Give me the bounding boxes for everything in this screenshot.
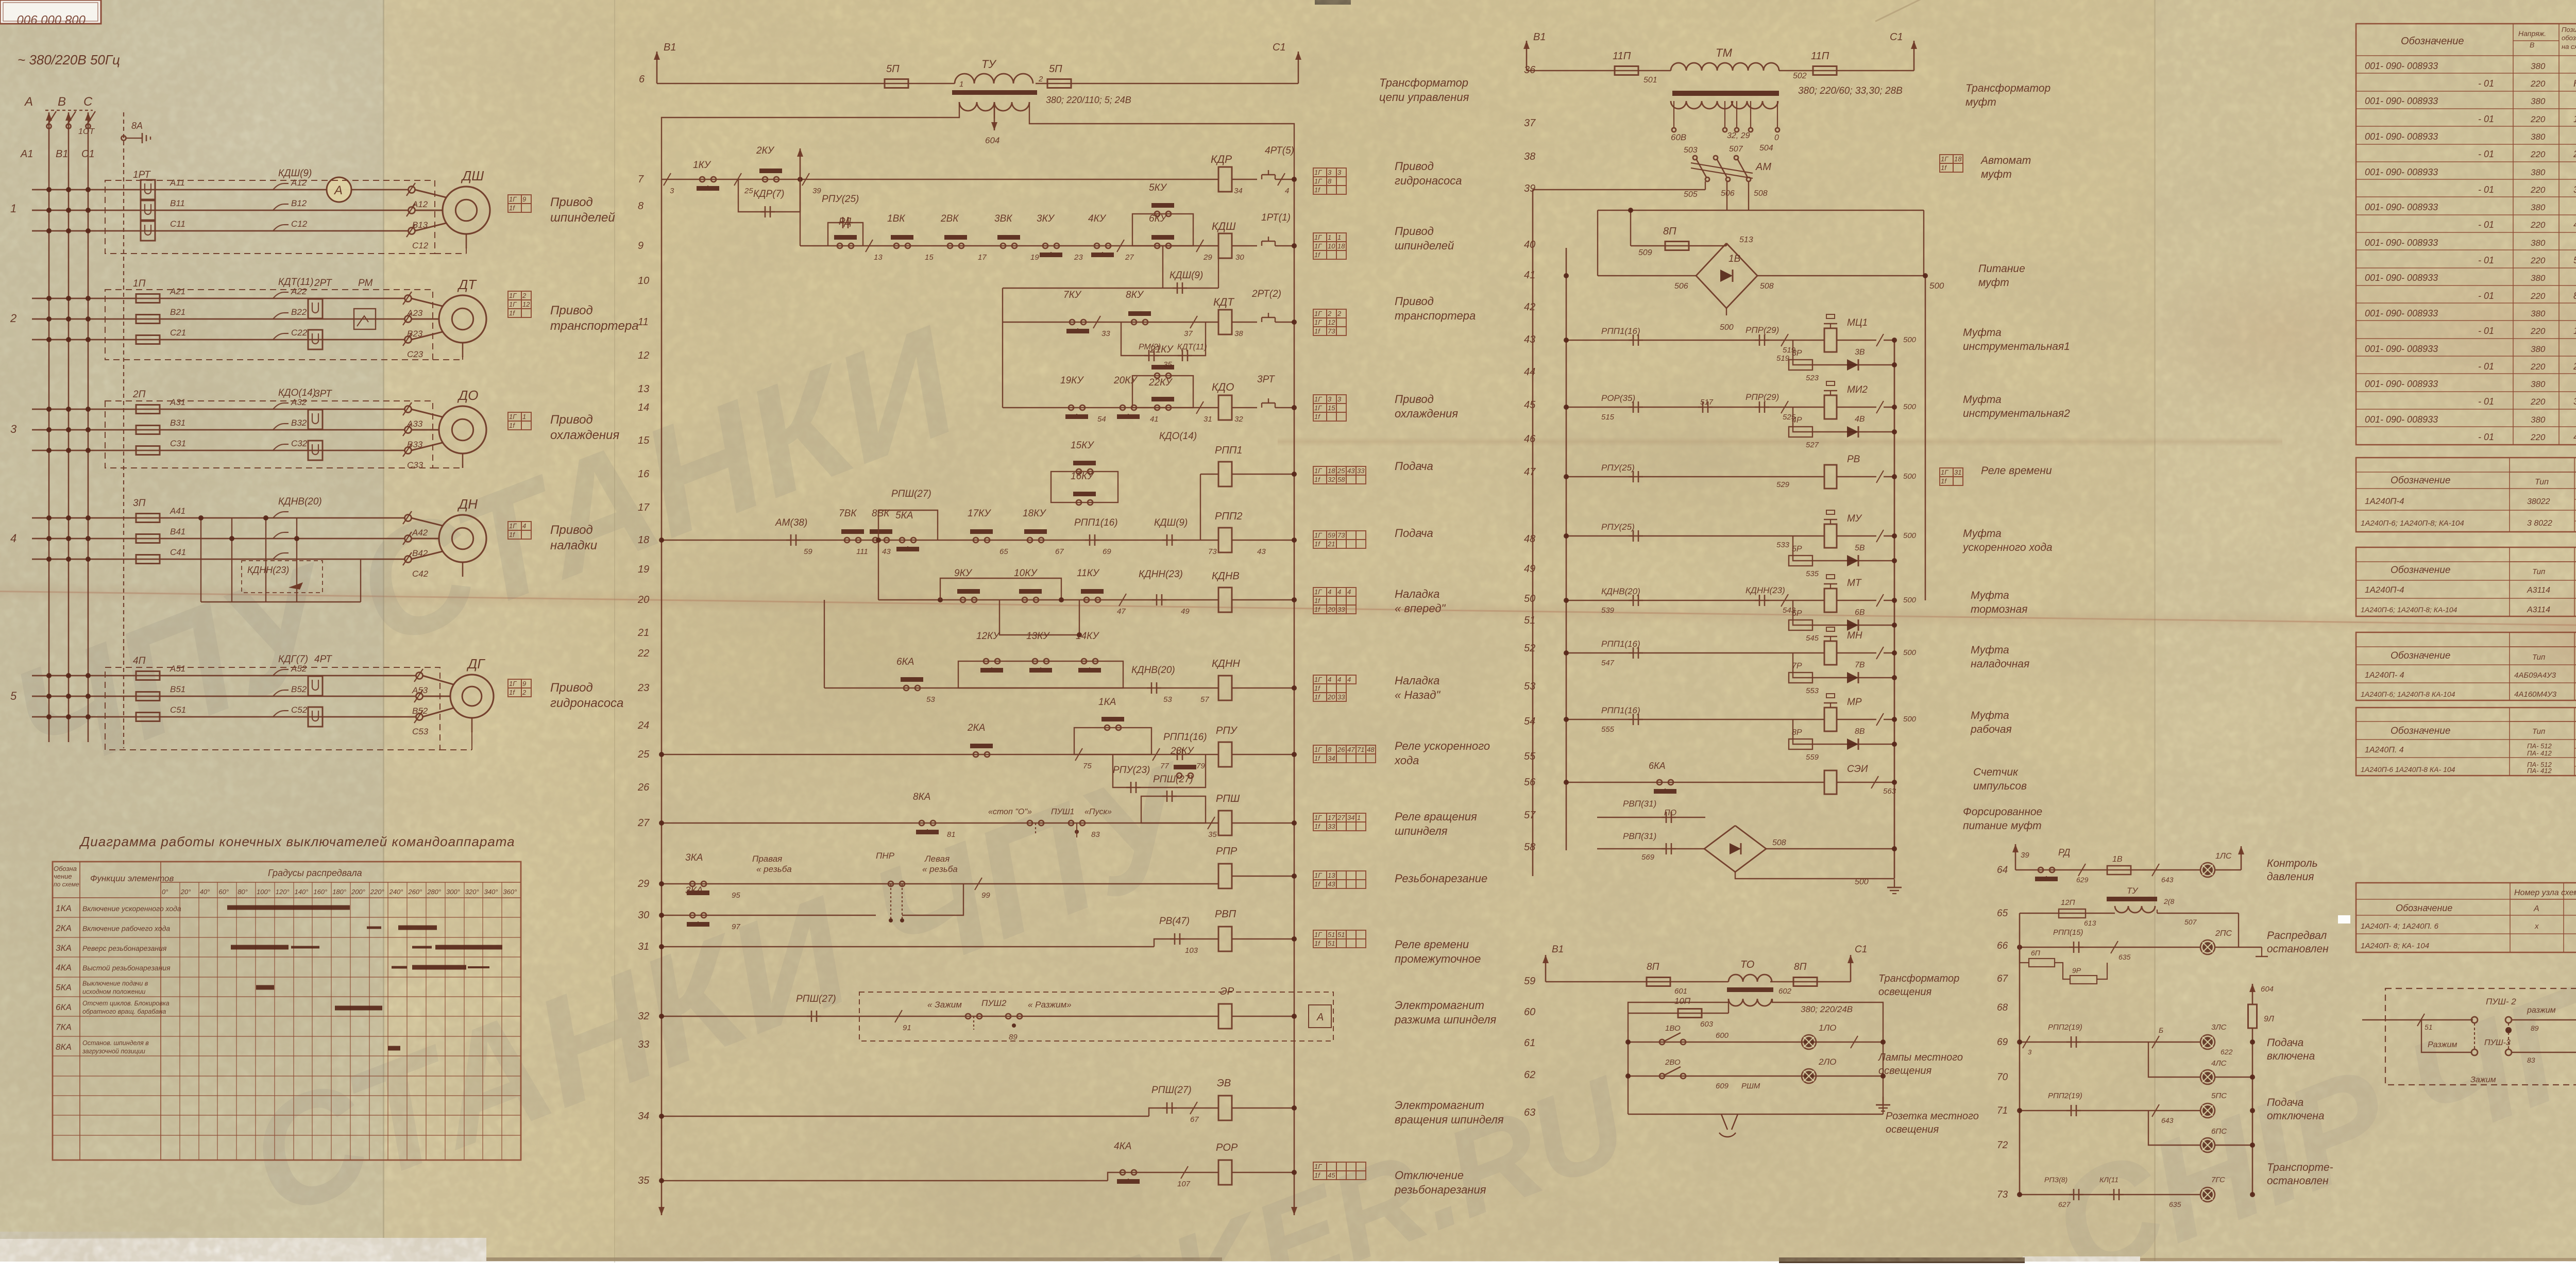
svg-text:8П: 8П: [1794, 962, 1807, 972]
svg-text:89: 89: [1009, 1033, 1018, 1042]
svg-text:Привод: Привод: [550, 681, 593, 695]
svg-text:Электромагнит: Электромагнит: [1395, 1099, 1484, 1112]
svg-text:8П: 8П: [1647, 962, 1659, 972]
svg-text:5П: 5П: [1049, 63, 1062, 75]
svg-text:17: 17: [978, 253, 987, 262]
svg-text:4: 4: [1347, 588, 1351, 596]
svg-text:1Г: 1Г: [1314, 588, 1322, 596]
svg-text:В22: В22: [291, 307, 307, 317]
svg-text:наладочная: наладочная: [1971, 658, 2029, 670]
svg-text:разжима шпинделя: разжима шпинделя: [1394, 1013, 1497, 1026]
svg-text:43: 43: [1257, 547, 1266, 556]
svg-text:67: 67: [1997, 973, 2009, 984]
svg-text:Реле времени: Реле времени: [1981, 465, 2052, 477]
svg-text:КДНН(23): КДНН(23): [1745, 585, 1785, 595]
svg-text:Обозначение: Обозначение: [2401, 36, 2464, 47]
svg-text:12: 12: [1328, 318, 1335, 326]
svg-text:1f: 1f: [1314, 880, 1320, 888]
svg-text:РПШ(27): РПШ(27): [891, 489, 931, 499]
svg-text:43: 43: [1347, 467, 1355, 475]
svg-text:Транспорте-: Транспорте-: [2267, 1162, 2333, 1173]
svg-text:ТМ: ТМ: [1716, 46, 1733, 59]
svg-text:С12: С12: [412, 241, 429, 250]
svg-text:71: 71: [1357, 746, 1364, 753]
svg-text:240°: 240°: [389, 888, 403, 896]
svg-text:3: 3: [1328, 169, 1332, 176]
svg-text:Останов. шпинделя в: Останов. шпинделя в: [82, 1039, 149, 1047]
svg-text:001- 090- 008933: 001- 090- 008933: [2365, 61, 2438, 71]
svg-text:507: 507: [2184, 918, 2197, 926]
svg-text:6П: 6П: [2031, 949, 2041, 957]
svg-text:А: А: [333, 183, 343, 197]
svg-text:4: 4: [1337, 588, 1341, 596]
svg-text:ТУ: ТУ: [981, 58, 996, 71]
svg-text:Муфта: Муфта: [1963, 394, 2002, 406]
svg-text:А1: А1: [20, 148, 33, 160]
svg-text:- 01: - 01: [2478, 149, 2494, 159]
svg-text:73: 73: [1328, 327, 1335, 335]
svg-text:4КА: 4КА: [56, 963, 72, 972]
svg-text:559: 559: [1806, 753, 1819, 762]
svg-text:2П: 2П: [132, 389, 146, 400]
svg-text:4: 4: [1347, 676, 1351, 683]
svg-text:545: 545: [1806, 634, 1819, 643]
svg-text:4: 4: [1337, 676, 1341, 683]
svg-text:7: 7: [638, 174, 644, 185]
svg-text:ДН: ДН: [457, 496, 478, 512]
svg-text:30: 30: [638, 910, 649, 921]
svg-text:ДО: ДО: [457, 388, 479, 403]
svg-text:57: 57: [1524, 810, 1536, 821]
svg-text:604: 604: [985, 136, 999, 145]
svg-text:539: 539: [1601, 606, 1615, 615]
svg-text:Отключение: Отключение: [1395, 1169, 1464, 1182]
svg-text:по схеме: по схеме: [54, 881, 79, 888]
svg-text:РПП1: РПП1: [1215, 445, 1242, 456]
svg-text:502: 502: [1793, 72, 1807, 80]
svg-text:гидронасоса: гидронасоса: [1395, 174, 1462, 187]
svg-text:8П: 8П: [1663, 226, 1676, 237]
svg-text:Градусы распредвала: Градусы распредвала: [268, 868, 362, 878]
svg-text:2ПС: 2ПС: [2215, 929, 2232, 938]
svg-text:46: 46: [1524, 433, 1536, 445]
svg-text:601: 601: [1674, 987, 1687, 996]
svg-text:53: 53: [926, 695, 935, 704]
svg-text:обратного вращ. барабана: обратного вращ. барабана: [82, 1008, 166, 1015]
svg-text:300°: 300°: [446, 888, 460, 896]
svg-text:2РТ: 2РТ: [314, 278, 332, 289]
svg-text:гидронасоса: гидронасоса: [550, 696, 623, 710]
svg-text:7КА: 7КА: [56, 1022, 72, 1032]
svg-text:43: 43: [1328, 880, 1335, 888]
svg-text:627: 627: [2058, 1200, 2071, 1208]
svg-text:99: 99: [981, 891, 990, 900]
svg-text:В1: В1: [56, 148, 68, 160]
svg-text:83: 83: [2527, 1056, 2535, 1064]
svg-text:остановлен: остановлен: [2267, 943, 2329, 955]
svg-text:001- 090- 008933: 001- 090- 008933: [2365, 344, 2438, 354]
svg-text:1Г: 1Г: [1941, 468, 1948, 476]
svg-text:Электромагнит: Электромагнит: [1395, 999, 1484, 1012]
svg-text:1ОТ: 1ОТ: [78, 127, 95, 136]
svg-text:35: 35: [1208, 830, 1217, 839]
svg-text:10КУ: 10КУ: [1014, 568, 1038, 579]
svg-text:КДТ: КДТ: [1213, 296, 1235, 308]
svg-text:12: 12: [638, 350, 649, 361]
svg-text:503: 503: [1684, 146, 1698, 155]
svg-text:635: 635: [2169, 1200, 2181, 1208]
svg-text:89: 89: [2531, 1024, 2539, 1032]
svg-text:1ЛО: 1ЛО: [1819, 1023, 1836, 1033]
svg-text:шпинделей: шпинделей: [550, 211, 615, 225]
svg-text:С1: С1: [1855, 944, 1867, 955]
svg-text:4КА: 4КА: [1114, 1141, 1131, 1152]
svg-text:ПУШ-3: ПУШ-3: [2484, 1038, 2511, 1047]
svg-text:67: 67: [1190, 1115, 1199, 1124]
svg-text:380: 380: [2531, 238, 2546, 248]
svg-text:Контроль: Контроль: [2267, 858, 2318, 869]
svg-text:1f: 1f: [1314, 413, 1320, 421]
svg-text:3Р: 3Р: [1792, 349, 1802, 358]
svg-text:103: 103: [1185, 946, 1198, 955]
svg-text:60°: 60°: [218, 888, 229, 896]
svg-text:200°: 200°: [351, 888, 365, 896]
svg-text:1f: 1f: [1314, 251, 1320, 259]
svg-text:1П: 1П: [2573, 114, 2576, 124]
svg-text:47: 47: [1117, 607, 1126, 616]
svg-text:Тип: Тип: [2532, 727, 2545, 736]
svg-text:8КУ: 8КУ: [1126, 290, 1144, 300]
svg-text:35: 35: [638, 1175, 650, 1186]
svg-text:- 01: - 01: [2478, 255, 2494, 265]
svg-text:38022: 38022: [2527, 497, 2550, 506]
svg-text:КДР: КДР: [1211, 154, 1232, 165]
svg-text:24: 24: [637, 720, 649, 731]
svg-text:380: 380: [2531, 344, 2546, 354]
svg-text:63: 63: [1524, 1107, 1535, 1118]
svg-text:1f: 1f: [1314, 939, 1320, 947]
svg-text:8КА: 8КА: [913, 792, 930, 802]
svg-text:1А240П-6; 1А240П-8 КА-104: 1А240П-6; 1А240П-8 КА-104: [2361, 690, 2455, 698]
svg-text:340°: 340°: [484, 888, 498, 896]
svg-text:цепи управления: цепи управления: [1379, 91, 1469, 104]
svg-text:КДО(14): КДО(14): [1159, 431, 1197, 442]
svg-text:4П: 4П: [2573, 220, 2576, 230]
svg-text:001- 090- 008933: 001- 090- 008933: [2365, 308, 2438, 318]
svg-text:34: 34: [1328, 754, 1335, 762]
svg-text:71: 71: [1997, 1105, 2008, 1116]
svg-text:64: 64: [1997, 865, 2008, 876]
svg-text:Привод: Привод: [1395, 225, 1434, 238]
svg-text:66: 66: [1997, 941, 2008, 951]
svg-text:380; 220/24В: 380; 220/24В: [1801, 1004, 1853, 1014]
svg-text:553: 553: [1806, 686, 1819, 695]
svg-text:563: 563: [1883, 787, 1896, 796]
svg-text:1Г: 1Г: [1314, 871, 1322, 879]
svg-text:РПП1(16): РПП1(16): [1601, 639, 1640, 649]
svg-text:220: 220: [2530, 397, 2546, 407]
svg-text:500: 500: [1903, 335, 1917, 344]
svg-text:1f: 1f: [1314, 822, 1320, 830]
svg-text:529: 529: [1776, 480, 1790, 489]
svg-text:3КА: 3КА: [685, 852, 703, 863]
svg-text:21: 21: [1327, 540, 1335, 548]
svg-text:1В: 1В: [2112, 855, 2123, 864]
svg-text:Реверс резьбонарезания: Реверс резьбонарезания: [82, 944, 167, 952]
svg-text:АМ: АМ: [1755, 161, 1771, 173]
svg-text:23КУ: 23КУ: [1170, 746, 1194, 757]
svg-text:547: 547: [1601, 659, 1615, 667]
svg-text:1f: 1f: [1314, 327, 1320, 335]
svg-text:180°: 180°: [332, 888, 346, 896]
svg-text:Подача: Подача: [1395, 527, 1433, 540]
svg-text:39: 39: [2021, 851, 2029, 860]
svg-text:- 01: - 01: [2478, 220, 2494, 230]
svg-text:3В: 3В: [1855, 348, 1865, 357]
svg-text:РВП: РВП: [1215, 909, 1236, 920]
svg-text:220: 220: [2530, 185, 2546, 195]
svg-text:РД: РД: [2058, 847, 2071, 858]
svg-text:001- 090- 008933: 001- 090- 008933: [2365, 96, 2438, 106]
svg-text:ТО: ТО: [1740, 959, 1754, 970]
svg-text:59: 59: [1328, 531, 1335, 539]
svg-text:12П: 12П: [2061, 898, 2075, 907]
svg-text:В: В: [58, 95, 66, 109]
svg-text:0°: 0°: [162, 888, 168, 896]
svg-text:МЦ1: МЦ1: [1847, 317, 1868, 328]
svg-text:220°: 220°: [370, 888, 384, 896]
svg-text:51: 51: [2425, 1023, 2433, 1031]
svg-text:РПЗ(8): РПЗ(8): [2044, 1176, 2067, 1184]
svg-text:40°: 40°: [200, 888, 210, 896]
svg-text:8В: 8В: [1855, 727, 1865, 736]
svg-text:380; 220/110; 5; 24В: 380; 220/110; 5; 24В: [1046, 95, 1131, 105]
svg-text:1Г: 1Г: [509, 195, 517, 203]
svg-text:1Г: 1Г: [1314, 467, 1322, 475]
svg-text:001- 090- 008933: 001- 090- 008933: [2365, 414, 2438, 425]
svg-text:602: 602: [1778, 987, 1792, 996]
svg-text:А21: А21: [170, 287, 185, 296]
svg-text:500: 500: [1903, 648, 1917, 657]
svg-text:48: 48: [1367, 746, 1375, 753]
svg-text:50: 50: [1524, 593, 1535, 605]
svg-text:Правая: Правая: [752, 854, 782, 864]
svg-text:С41: С41: [170, 547, 186, 557]
svg-text:С22: С22: [291, 328, 308, 338]
svg-text:39: 39: [812, 187, 821, 195]
svg-text:58: 58: [1524, 842, 1535, 853]
svg-text:КДО(14): КДО(14): [278, 388, 316, 398]
svg-text:КДШ: КДШ: [1212, 221, 1236, 232]
svg-text:инструментальная2: инструментальная2: [1963, 408, 2070, 419]
svg-text:18: 18: [638, 534, 649, 546]
svg-text:1Г: 1Г: [1314, 318, 1322, 326]
svg-text:500: 500: [1903, 596, 1917, 605]
svg-text:18: 18: [1954, 155, 1962, 163]
svg-text:10: 10: [1328, 242, 1335, 250]
svg-text:С42: С42: [412, 569, 429, 579]
svg-text:45: 45: [1328, 1171, 1335, 1179]
svg-text:обознач.: обознач.: [2562, 34, 2576, 42]
svg-text:3: 3: [10, 423, 17, 435]
svg-text:2: 2: [522, 689, 527, 696]
svg-text:49: 49: [1524, 563, 1535, 575]
svg-text:47: 47: [1524, 466, 1536, 478]
svg-text:Включение ускоренного хода: Включение ускоренного хода: [82, 904, 181, 913]
svg-text:- 01: - 01: [2478, 396, 2494, 407]
svg-text:4: 4: [1328, 588, 1331, 596]
svg-text:37: 37: [1524, 117, 1536, 129]
svg-text:А22: А22: [291, 287, 307, 296]
svg-text:6: 6: [639, 74, 645, 85]
svg-text:57: 57: [1200, 695, 1209, 704]
svg-text:519: 519: [1776, 354, 1790, 363]
svg-text:97: 97: [732, 922, 740, 931]
svg-text:- 01: - 01: [2478, 361, 2494, 372]
svg-text:РПУ(25): РПУ(25): [822, 194, 859, 205]
svg-text:33: 33: [1328, 822, 1335, 830]
svg-text:220: 220: [2530, 149, 2546, 159]
svg-text:75: 75: [1083, 762, 1092, 770]
svg-text:18КУ: 18КУ: [1023, 508, 1046, 519]
svg-text:РПШ: РПШ: [1216, 793, 1240, 804]
svg-text:111: 111: [856, 547, 868, 556]
svg-text:В11: В11: [170, 198, 185, 208]
svg-text:72: 72: [1997, 1140, 2008, 1151]
svg-text:В12: В12: [291, 198, 307, 208]
svg-text:Муфта: Муфта: [1971, 590, 2009, 601]
svg-text:6КА: 6КА: [1649, 761, 1666, 771]
svg-text:КДШ(9): КДШ(9): [1154, 517, 1188, 528]
svg-text:13: 13: [638, 383, 649, 395]
svg-text:555: 555: [1601, 725, 1615, 734]
svg-text:8: 8: [1328, 177, 1332, 185]
svg-text:РВП(31): РВП(31): [1623, 799, 1656, 809]
svg-text:ДГ: ДГ: [466, 656, 485, 671]
svg-text:59: 59: [1524, 976, 1535, 987]
svg-text:1Г: 1Г: [1314, 676, 1322, 683]
svg-text:33: 33: [638, 1039, 649, 1050]
svg-text:5КА: 5КА: [895, 510, 913, 521]
svg-text:Левая: Левая: [924, 854, 950, 864]
svg-text:Номер узла схемы: Номер узла схемы: [2514, 888, 2576, 897]
svg-text:42: 42: [1524, 301, 1535, 313]
svg-text:603: 603: [1700, 1020, 1714, 1029]
svg-text:РПР(29): РПР(29): [1745, 325, 1779, 335]
svg-text:20: 20: [637, 594, 649, 606]
svg-text:73: 73: [1997, 1189, 2008, 1200]
svg-text:54: 54: [1524, 716, 1535, 727]
svg-text:51: 51: [1337, 931, 1345, 938]
svg-text:Обозначение: Обозначение: [2391, 650, 2450, 661]
svg-text:ПА- 512: ПА- 512: [2527, 742, 2552, 750]
svg-text:3КА: 3КА: [56, 943, 72, 953]
svg-text:питание муфт: питание муфт: [1963, 820, 2042, 832]
svg-text:шпинделя: шпинделя: [1395, 825, 1448, 837]
svg-text:13: 13: [874, 253, 883, 262]
svg-text:С11: С11: [170, 219, 185, 229]
svg-text:220: 220: [2530, 432, 2546, 442]
svg-text:20КУ: 20КУ: [1113, 375, 1138, 386]
svg-text:3ЛС: 3ЛС: [2211, 1023, 2227, 1032]
svg-text:001- 090- 008933: 001- 090- 008933: [2365, 167, 2438, 177]
svg-text:533: 533: [1776, 541, 1790, 549]
svg-text:31: 31: [638, 941, 649, 952]
svg-text:Реле ускоренного: Реле ускоренного: [1395, 740, 1490, 752]
svg-text:001- 090- 008933: 001- 090- 008933: [2365, 238, 2438, 248]
svg-text:51: 51: [1328, 939, 1335, 947]
svg-text:ПУШ2: ПУШ2: [981, 998, 1007, 1008]
svg-text:1А240П-6; 1А240П-8; КА-104: 1А240П-6; 1А240П-8; КА-104: [2361, 519, 2464, 528]
svg-text:506: 506: [1721, 189, 1735, 198]
svg-text:Позиц.: Позиц.: [2562, 26, 2576, 33]
svg-text:исходном положении: исходном положении: [82, 988, 145, 996]
svg-text:2: 2: [1327, 310, 1332, 317]
svg-text:3РТ: 3РТ: [314, 389, 332, 399]
svg-text:1f: 1f: [509, 422, 515, 429]
svg-text:3: 3: [1328, 395, 1332, 403]
svg-text:- 01: - 01: [2478, 114, 2494, 124]
svg-text:« Разжим»: « Разжим»: [1028, 1000, 1072, 1010]
svg-text:505: 505: [1684, 190, 1698, 199]
svg-text:Привод: Привод: [1395, 393, 1434, 406]
svg-text:Привод: Привод: [550, 195, 593, 209]
svg-text:СЭИ: СЭИ: [1847, 764, 1868, 775]
svg-text:Обозна: Обозна: [54, 865, 77, 872]
svg-text:- 01: - 01: [2478, 291, 2494, 301]
svg-text:3КА: 3КА: [685, 885, 703, 896]
svg-text:РПШ(27): РПШ(27): [1153, 774, 1193, 785]
svg-text:4: 4: [10, 532, 16, 545]
svg-text:54: 54: [1097, 415, 1106, 424]
svg-text:380: 380: [2531, 203, 2546, 212]
svg-text:140°: 140°: [295, 888, 309, 896]
svg-text:613: 613: [2084, 919, 2096, 927]
svg-text:РПШ(27): РПШ(27): [1151, 1085, 1192, 1096]
svg-text:508: 508: [1754, 189, 1768, 198]
svg-text:1Г: 1Г: [1314, 1163, 1322, 1170]
svg-text:муфт: муфт: [1978, 277, 2009, 289]
svg-text:501: 501: [1643, 76, 1657, 85]
svg-text:КДШ(9): КДШ(9): [278, 168, 312, 179]
svg-text:1Г: 1Г: [509, 680, 517, 687]
svg-text:73: 73: [1208, 547, 1217, 556]
svg-text:РВП(31): РВП(31): [1623, 831, 1656, 841]
svg-text:В31: В31: [170, 418, 185, 428]
svg-text:4ЛС: 4ЛС: [2211, 1059, 2227, 1068]
svg-text:45: 45: [1524, 399, 1536, 411]
svg-text:6КУ: 6КУ: [1149, 213, 1167, 224]
svg-text:Питание: Питание: [1978, 263, 2025, 275]
svg-text:отключена: отключена: [2267, 1110, 2325, 1122]
svg-text:ПУШ1: ПУШ1: [1051, 808, 1074, 816]
svg-text:11: 11: [638, 316, 649, 328]
svg-text:20: 20: [1327, 693, 1335, 701]
svg-text:360°: 360°: [503, 888, 517, 896]
svg-text:8Р: 8Р: [1792, 728, 1802, 737]
svg-text:4Р: 4Р: [1792, 416, 1802, 425]
svg-text:1А240П-4: 1А240П-4: [2365, 585, 2404, 595]
svg-text:Наладка: Наладка: [1395, 587, 1439, 600]
svg-text:500: 500: [1903, 715, 1917, 724]
svg-text:2КА: 2КА: [55, 923, 72, 933]
svg-text:2: 2: [10, 312, 16, 325]
svg-text:В: В: [2530, 41, 2534, 49]
svg-text:Трансформатор: Трансформатор: [1965, 82, 2050, 94]
svg-text:1А240П- 4; 1А240П. 6: 1А240П- 4; 1А240П. 6: [2361, 922, 2439, 931]
svg-text:4АБ09А4У3: 4АБ09А4У3: [2514, 671, 2556, 680]
svg-text:1: 1: [1337, 233, 1341, 241]
